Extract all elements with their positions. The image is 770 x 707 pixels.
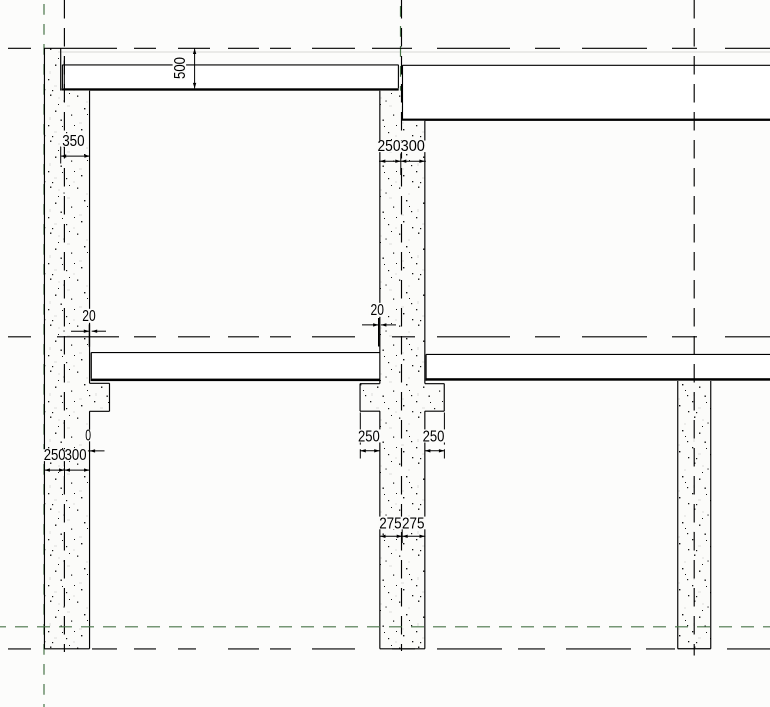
svg-text:500: 500 (172, 57, 189, 79)
svg-text:20: 20 (82, 308, 95, 325)
svg-text:275: 275 (402, 515, 425, 532)
svg-text:20: 20 (371, 302, 384, 319)
svg-text:300: 300 (401, 138, 425, 155)
svg-text:0: 0 (85, 427, 91, 444)
svg-text:350: 350 (62, 133, 84, 150)
svg-text:300: 300 (65, 447, 87, 464)
svg-text:250: 250 (358, 429, 380, 446)
svg-text:250: 250 (423, 429, 445, 446)
svg-text:250: 250 (378, 138, 401, 155)
svg-text:275: 275 (379, 515, 402, 532)
svg-text:250: 250 (44, 447, 66, 464)
